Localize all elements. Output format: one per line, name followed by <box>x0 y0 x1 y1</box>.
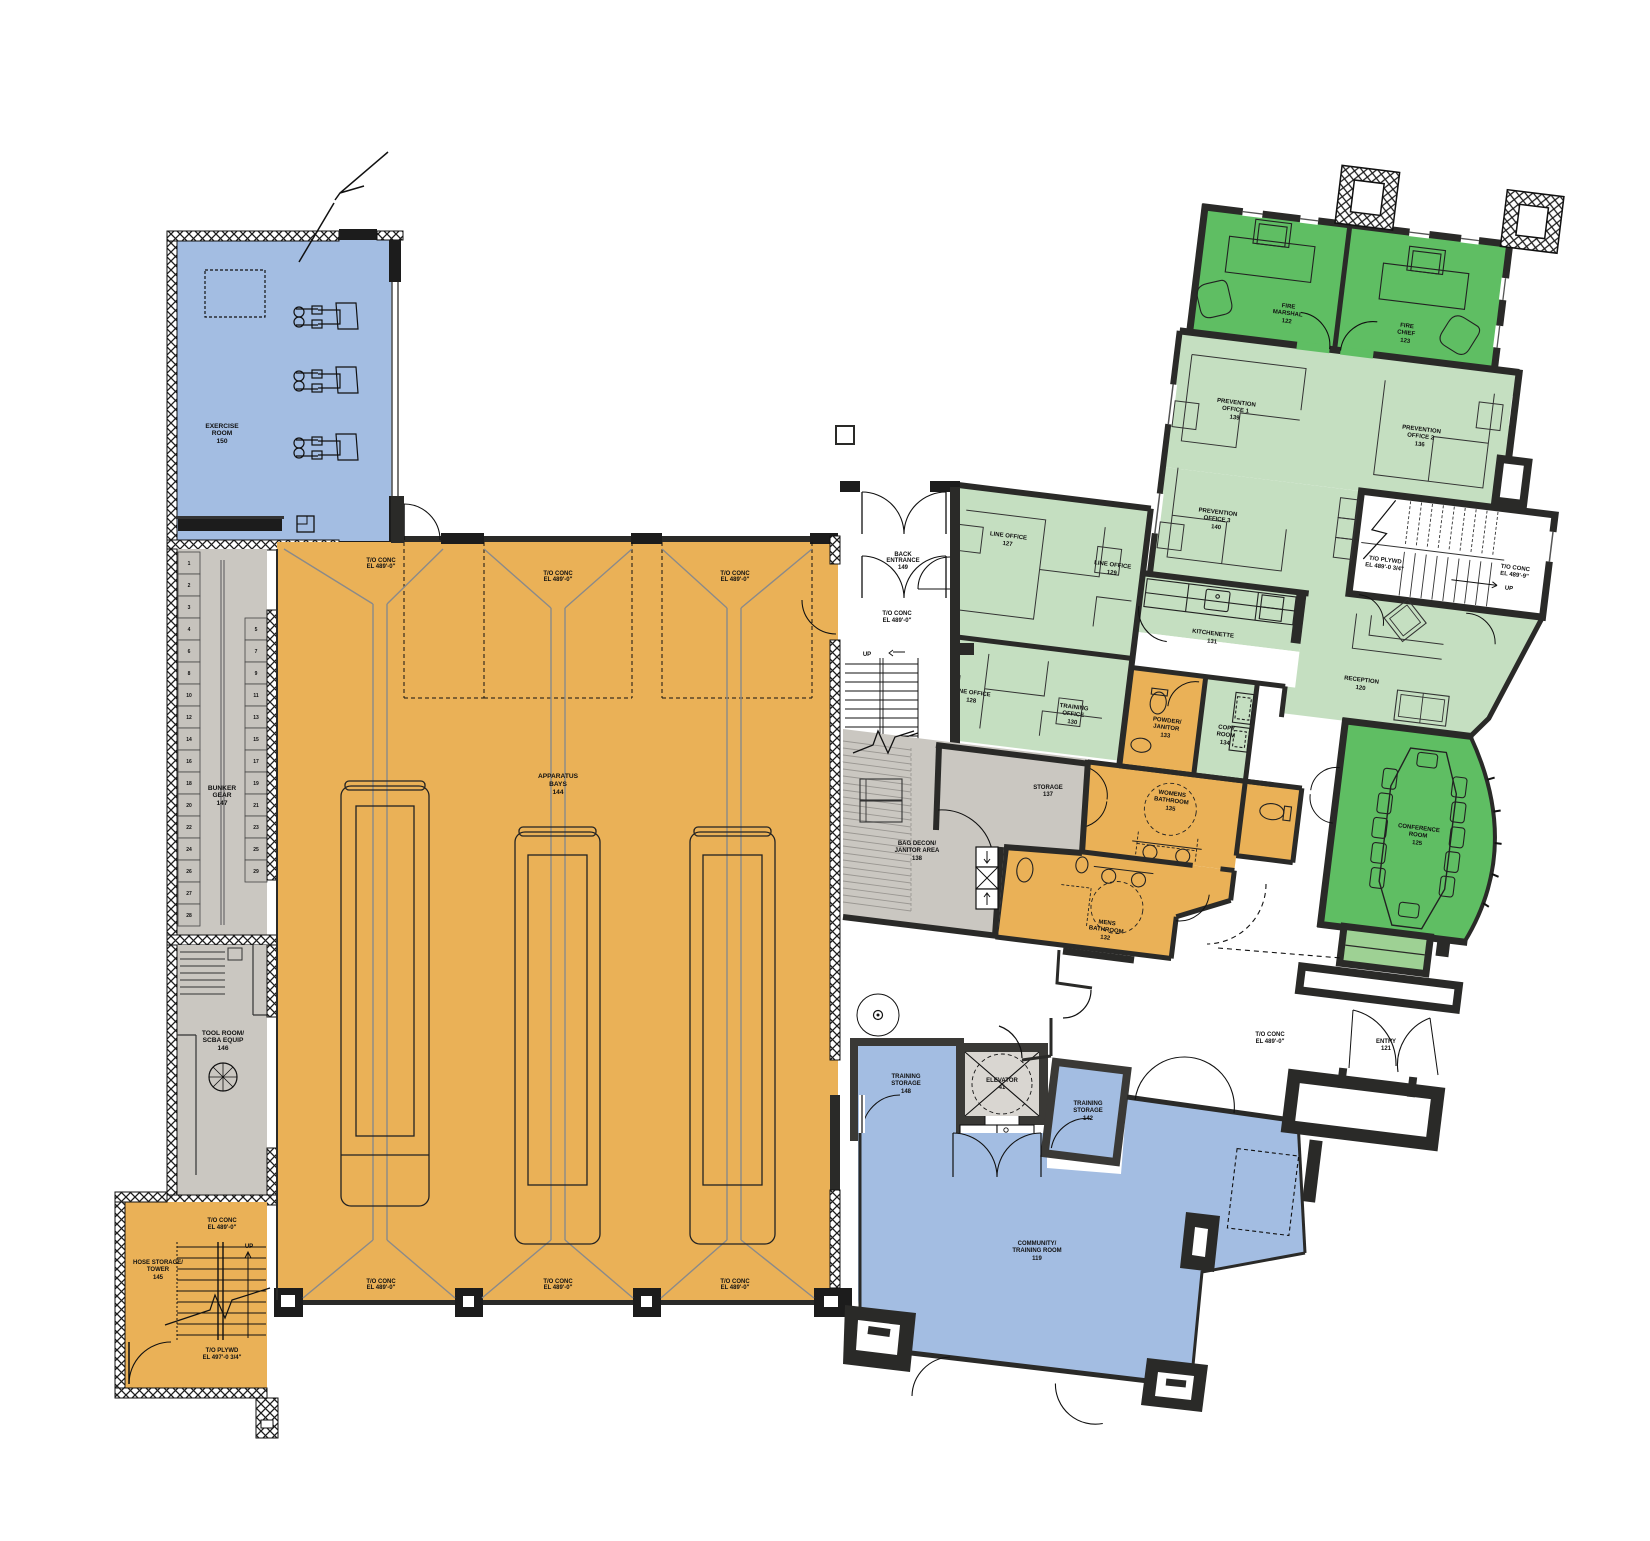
svg-text:28: 28 <box>186 913 192 919</box>
svg-text:ENTRANCE: ENTRANCE <box>886 558 919 564</box>
svg-text:SCBA EQUIP: SCBA EQUIP <box>203 1037 244 1044</box>
svg-text:150: 150 <box>216 438 227 445</box>
svg-text:EL 497'-0 3/4": EL 497'-0 3/4" <box>203 1355 242 1361</box>
svg-text:5: 5 <box>255 627 258 633</box>
svg-text:14: 14 <box>186 737 192 743</box>
svg-text:ROOM: ROOM <box>212 430 233 437</box>
svg-text:HOSE STORAGE/: HOSE STORAGE/ <box>133 1260 183 1266</box>
svg-text:13: 13 <box>253 715 259 721</box>
svg-text:GEAR: GEAR <box>212 792 231 799</box>
svg-text:BAYS: BAYS <box>549 781 567 788</box>
svg-text:9: 9 <box>255 671 258 677</box>
svg-text:EL 489'-0": EL 489'-0" <box>544 577 573 583</box>
svg-text:UP: UP <box>1504 585 1513 592</box>
svg-text:EL 489'-0": EL 489'-0" <box>367 1285 396 1291</box>
svg-text:41: 41 <box>999 1085 1006 1091</box>
svg-text:TRAINING: TRAINING <box>892 1074 921 1080</box>
svg-text:EL 489'-0": EL 489'-0" <box>883 618 912 624</box>
svg-text:TOOL ROOM/: TOOL ROOM/ <box>202 1030 244 1037</box>
svg-text:2: 2 <box>188 583 191 589</box>
svg-text:149: 149 <box>898 565 909 571</box>
svg-text:4: 4 <box>188 627 191 633</box>
svg-text:137: 137 <box>1043 792 1054 798</box>
svg-text:T/O CONC: T/O CONC <box>1255 1032 1285 1038</box>
svg-text:STORAGE: STORAGE <box>1073 1108 1103 1114</box>
svg-text:23: 23 <box>253 825 259 831</box>
svg-text:18: 18 <box>186 781 192 787</box>
svg-text:STORAGE: STORAGE <box>891 1081 921 1087</box>
svg-text:146: 146 <box>217 1045 228 1052</box>
svg-text:ELEVATOR: ELEVATOR <box>986 1078 1018 1084</box>
svg-text:144: 144 <box>552 789 563 796</box>
svg-text:BAG DECON/: BAG DECON/ <box>898 841 937 847</box>
svg-text:11: 11 <box>253 693 259 699</box>
svg-text:T/O PLYWD: T/O PLYWD <box>206 1348 239 1354</box>
svg-text:TRAINING: TRAINING <box>1074 1101 1103 1107</box>
svg-text:145: 145 <box>153 1275 164 1281</box>
svg-text:148: 148 <box>901 1089 912 1095</box>
svg-text:10: 10 <box>186 693 192 699</box>
svg-text:BUNKER: BUNKER <box>208 785 236 792</box>
svg-text:APPARATUS: APPARATUS <box>538 773 579 780</box>
svg-text:UP: UP <box>863 652 871 658</box>
svg-text:119: 119 <box>1032 1256 1042 1262</box>
svg-text:UP: UP <box>245 1244 253 1250</box>
svg-text:EXERCISE: EXERCISE <box>205 423 239 430</box>
svg-text:121: 121 <box>1381 1046 1392 1052</box>
svg-text:7: 7 <box>255 649 258 655</box>
svg-text:EL 489'-0": EL 489'-0" <box>721 577 750 583</box>
svg-text:6: 6 <box>188 649 191 655</box>
svg-text:22: 22 <box>186 825 192 831</box>
svg-text:21: 21 <box>253 803 259 809</box>
svg-text:17: 17 <box>253 759 259 765</box>
svg-text:T/O CONC: T/O CONC <box>882 611 912 617</box>
svg-text:COMMUNITY/: COMMUNITY/ <box>1018 1241 1057 1247</box>
svg-text:25: 25 <box>253 847 259 853</box>
svg-text:8: 8 <box>188 671 191 677</box>
svg-text:20: 20 <box>186 803 192 809</box>
svg-text:EL 489'-0": EL 489'-0" <box>544 1285 573 1291</box>
svg-text:15: 15 <box>253 737 259 743</box>
svg-text:EL 489'-0": EL 489'-0" <box>1256 1039 1285 1045</box>
svg-text:16: 16 <box>186 759 192 765</box>
svg-text:STORAGE: STORAGE <box>1033 785 1063 791</box>
svg-text:3: 3 <box>188 605 191 611</box>
svg-text:TRAINING ROOM: TRAINING ROOM <box>1012 1248 1061 1254</box>
svg-text:EL 489'-0": EL 489'-0" <box>367 564 396 570</box>
svg-text:138: 138 <box>912 856 923 862</box>
svg-text:142: 142 <box>1083 1116 1094 1122</box>
svg-text:29: 29 <box>253 869 259 875</box>
svg-text:1: 1 <box>188 561 191 567</box>
svg-text:T/O CONC: T/O CONC <box>207 1218 237 1224</box>
svg-text:26: 26 <box>186 869 192 875</box>
svg-text:19: 19 <box>253 781 259 787</box>
svg-text:ENTRY: ENTRY <box>1376 1039 1396 1045</box>
svg-text:12: 12 <box>186 715 192 721</box>
svg-text:EL 489'-0": EL 489'-0" <box>721 1285 750 1291</box>
svg-text:EL 489'-0": EL 489'-0" <box>208 1225 237 1231</box>
svg-text:TOWER: TOWER <box>147 1267 170 1273</box>
svg-text:147: 147 <box>216 800 227 807</box>
svg-text:JANITOR AREA: JANITOR AREA <box>895 848 940 854</box>
svg-text:24: 24 <box>186 847 192 853</box>
svg-text:27: 27 <box>186 891 192 897</box>
